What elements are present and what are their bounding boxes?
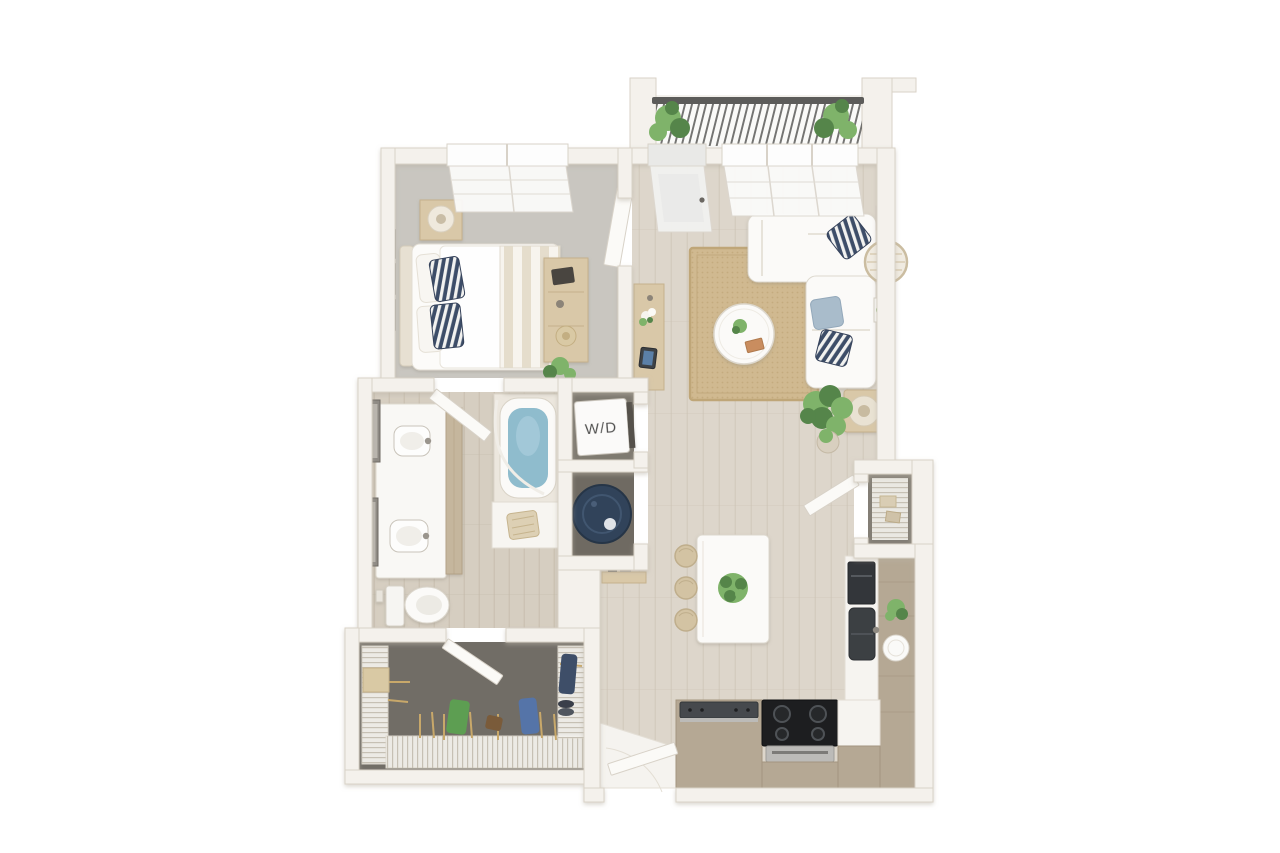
wall-segment (854, 474, 868, 482)
burner (776, 728, 788, 740)
bedroom-window (447, 144, 573, 212)
wall-segment (345, 628, 359, 784)
wall-segment (912, 460, 933, 558)
media-console (634, 284, 664, 390)
storage-box (885, 511, 900, 523)
burner (810, 706, 826, 722)
wall-oven (848, 562, 875, 604)
balcony-wall-stub (892, 78, 916, 92)
vanity (376, 404, 462, 578)
wall-segment (584, 628, 600, 802)
wall-segment (618, 266, 632, 392)
wall-segment (558, 378, 572, 570)
balcony (630, 78, 916, 148)
shoes (558, 708, 574, 716)
bathtub (494, 394, 562, 502)
water-heater (573, 485, 631, 543)
storage-box (363, 668, 389, 692)
burner (812, 728, 824, 740)
sink-faucet (873, 627, 879, 633)
accent-pillow (430, 303, 464, 350)
toilet-tank (386, 586, 404, 626)
wall-segment (358, 378, 372, 642)
wall-segment (345, 628, 446, 642)
desk-jar (556, 300, 564, 308)
door-handle (699, 197, 704, 202)
living-room-window (722, 144, 864, 216)
bed (400, 244, 560, 370)
faucet (423, 533, 429, 539)
water-heater-closet (573, 485, 631, 543)
dresser-desk (544, 258, 588, 362)
wall-segment (345, 770, 600, 784)
storage-box (880, 496, 896, 507)
desk-decor (551, 267, 575, 286)
washer-dryer-label: W/D (584, 419, 617, 438)
wall-segment (504, 378, 648, 392)
balcony-wall-right (862, 78, 892, 148)
wall-segment (877, 148, 895, 474)
burner (774, 706, 790, 722)
bar-stools (675, 545, 697, 631)
hanging-clothes-blue (518, 697, 540, 735)
plate (883, 635, 909, 661)
linen-half-wall (492, 502, 558, 548)
wall-segment (854, 544, 915, 558)
shoes (558, 700, 574, 708)
wall-segment (584, 788, 604, 802)
faucet (425, 438, 431, 444)
sofa-throw-pillow-blue (810, 296, 844, 330)
wall-segment (618, 148, 632, 198)
storage-basket (506, 510, 539, 540)
console-decor (647, 295, 653, 301)
range-cooktop (762, 700, 838, 746)
wall-segment (634, 392, 648, 404)
island-plant (718, 573, 748, 603)
balcony-railing (652, 97, 864, 104)
sofa-throw-pillow (815, 329, 854, 368)
wall-segment (915, 544, 933, 802)
coffee-table (714, 304, 774, 364)
balcony-door (648, 144, 712, 232)
wall-segment (381, 148, 395, 392)
wall-segment (634, 452, 648, 468)
wall-segment (558, 570, 600, 628)
floorplan-rendering: W/D (0, 0, 1280, 853)
bottom-counter-run (676, 700, 880, 788)
toilet-paper-holder (376, 590, 383, 602)
laundry-closet: W/D (574, 398, 636, 456)
kitchen-island (697, 535, 769, 643)
wall-segment (676, 788, 933, 802)
wall-segment (634, 544, 648, 570)
